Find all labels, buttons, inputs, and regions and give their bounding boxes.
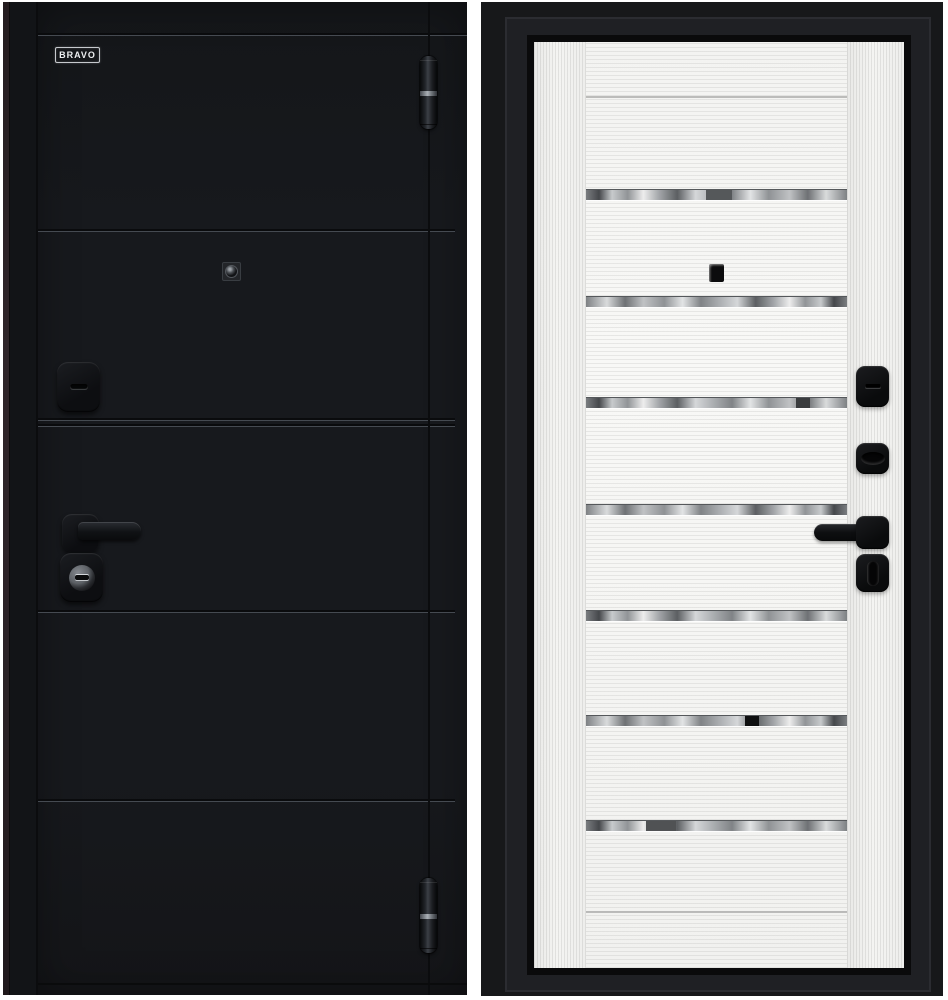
thumbturn-knob (867, 561, 879, 586)
panel-groove (38, 799, 455, 802)
door-jamb (10, 2, 38, 995)
glass-strip (586, 504, 847, 516)
hinge-edge-line (428, 2, 430, 995)
glass-strip (586, 610, 847, 622)
lock-cylinder (69, 565, 95, 591)
exterior-door-face: BRAVO (38, 2, 467, 995)
bottom-hairline-groove (586, 911, 847, 913)
glass-strip (586, 715, 847, 727)
door-bottom-edge (38, 983, 467, 985)
panel-groove (38, 229, 455, 232)
panel-groove (38, 424, 455, 427)
brand-logo-text: BRAVO (59, 51, 96, 60)
top-rail-groove (38, 33, 467, 36)
cylinder-slot-icon (75, 575, 89, 580)
top-hairline-groove (586, 96, 847, 98)
glass-strip (586, 397, 847, 409)
door-edge-strip (3, 2, 10, 995)
latch-oval-icon (861, 452, 885, 465)
cylinder-lock-escutcheon (60, 553, 103, 602)
keyhole-slot-icon (70, 384, 88, 390)
interior-door-leaf (534, 42, 904, 968)
peephole (709, 264, 724, 282)
glass-strip (586, 820, 847, 832)
peephole-lens-icon (225, 265, 238, 278)
panel-groove (38, 610, 455, 613)
top-hinge (420, 56, 437, 129)
right-stile (847, 42, 904, 968)
left-stile (534, 42, 586, 968)
door-handle (78, 522, 141, 540)
glass-strip (586, 296, 847, 308)
interior-door-panel (481, 2, 943, 996)
brand-logo: BRAVO (55, 47, 100, 63)
keyhole-escutcheon (856, 366, 889, 407)
keyhole-escutcheon (57, 362, 100, 412)
product-image: BRAVO (0, 0, 948, 1000)
panel-groove (38, 418, 455, 421)
thumbturn-escutcheon (856, 554, 889, 592)
keyhole-slot-icon (865, 384, 881, 389)
glass-strip (586, 189, 847, 201)
night-latch-escutcheon (856, 443, 889, 474)
exterior-door-panel: BRAVO (3, 2, 467, 995)
bottom-hinge (420, 878, 437, 953)
handle-rosette (856, 516, 889, 549)
peephole (222, 262, 241, 281)
